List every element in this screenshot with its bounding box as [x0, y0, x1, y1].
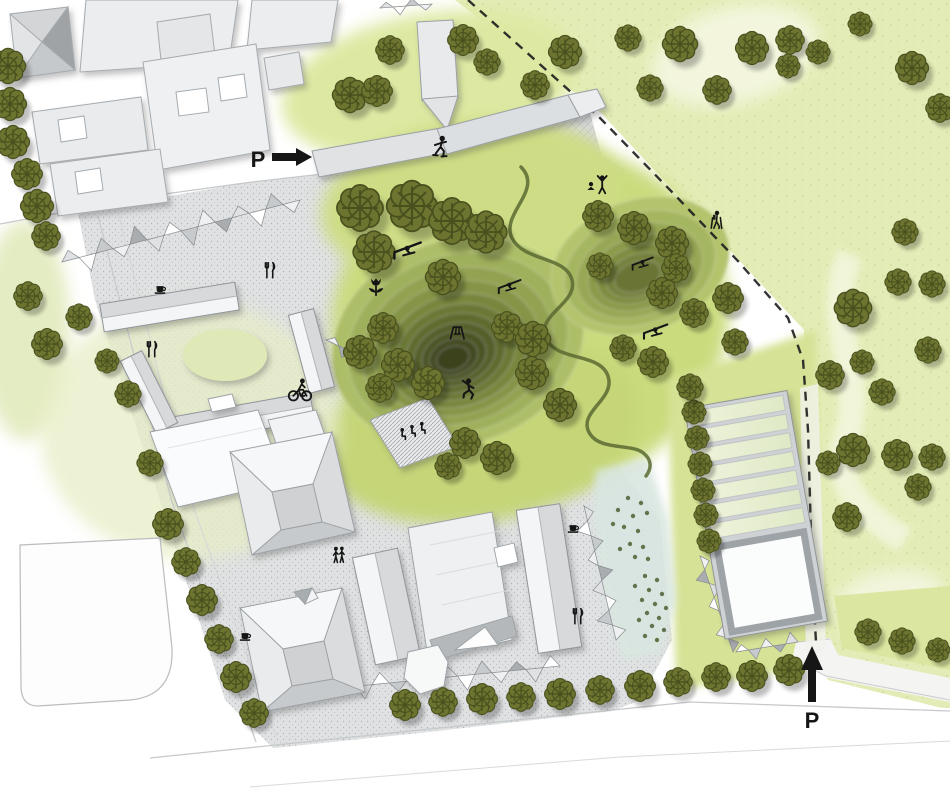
water-jet-dot	[657, 616, 661, 620]
water-jet-dot	[655, 638, 659, 642]
water-jet-dot	[664, 606, 668, 610]
water-jet-dot	[618, 547, 622, 551]
water-jet-dot	[633, 584, 637, 588]
water-jet-dot	[611, 522, 615, 526]
water-jet-dot	[662, 628, 666, 632]
water-jet-dot	[653, 602, 657, 606]
water-jet-dot	[636, 529, 640, 533]
water-jet-dot	[641, 545, 645, 549]
water-jet-dot	[637, 618, 641, 622]
water-jet-dot	[643, 634, 647, 638]
vacant-lot	[20, 538, 172, 706]
water-jet-dot	[616, 508, 620, 512]
courtyard-block-north	[230, 432, 355, 555]
water-jet-dot	[655, 578, 659, 582]
water-jet-dot	[645, 511, 649, 515]
parking-label-west: P	[251, 147, 266, 172]
site-plan-page: P P	[0, 0, 950, 800]
water-jet-dot	[633, 555, 637, 559]
water-jet-dot	[631, 514, 635, 518]
water-jet-dot	[660, 592, 664, 596]
greenhouse-court	[717, 532, 819, 632]
water-jet-dot	[639, 501, 643, 505]
water-jet-dot	[622, 525, 626, 529]
water-jet-dot	[640, 598, 644, 602]
water-jet-dot	[646, 557, 650, 561]
parking-label-south: P	[805, 708, 820, 733]
water-jet-dot	[645, 611, 649, 615]
courtyard-block-south	[240, 588, 365, 712]
water-jet-dot	[650, 624, 654, 628]
water-jet-dot	[626, 496, 630, 500]
water-jet-dot	[643, 574, 647, 578]
water-jet-dot	[628, 542, 632, 546]
water-jet-dot	[647, 588, 651, 592]
site-plan-canvas: P P	[0, 0, 950, 800]
